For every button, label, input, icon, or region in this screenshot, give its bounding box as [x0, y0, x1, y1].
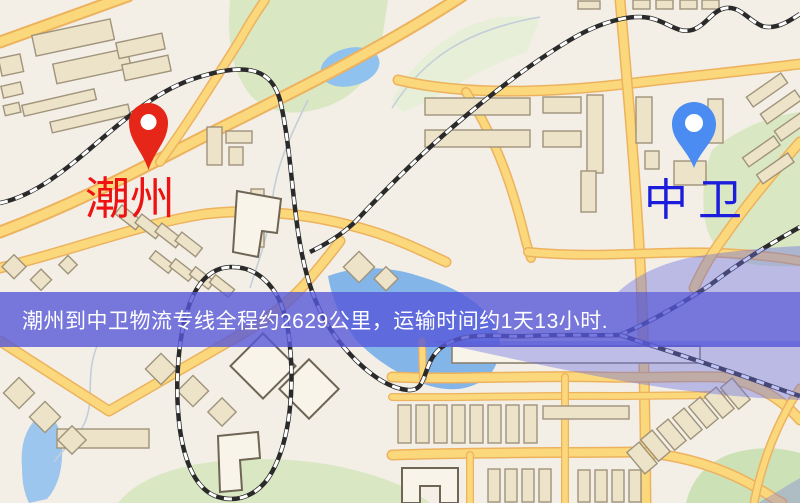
destination-label: 中卫 [644, 179, 752, 223]
origin-label: 潮州 [85, 177, 175, 222]
route-info-text: 潮州到中卫物流专线全程约2629公里，运输时间约1天13小时. [0, 305, 608, 335]
destination-pin[interactable] [668, 100, 720, 170]
origin-pin[interactable] [126, 100, 171, 172]
logistics-route-map: 潮州到中卫物流专线全程约2629公里，运输时间约1天13小时. 潮州 中卫 [0, 0, 800, 503]
map-pin-icon [126, 100, 171, 172]
map-canvas [0, 0, 800, 503]
route-info-banner: 潮州到中卫物流专线全程约2629公里，运输时间约1天13小时. [0, 292, 800, 347]
map-pin-icon [668, 100, 720, 170]
